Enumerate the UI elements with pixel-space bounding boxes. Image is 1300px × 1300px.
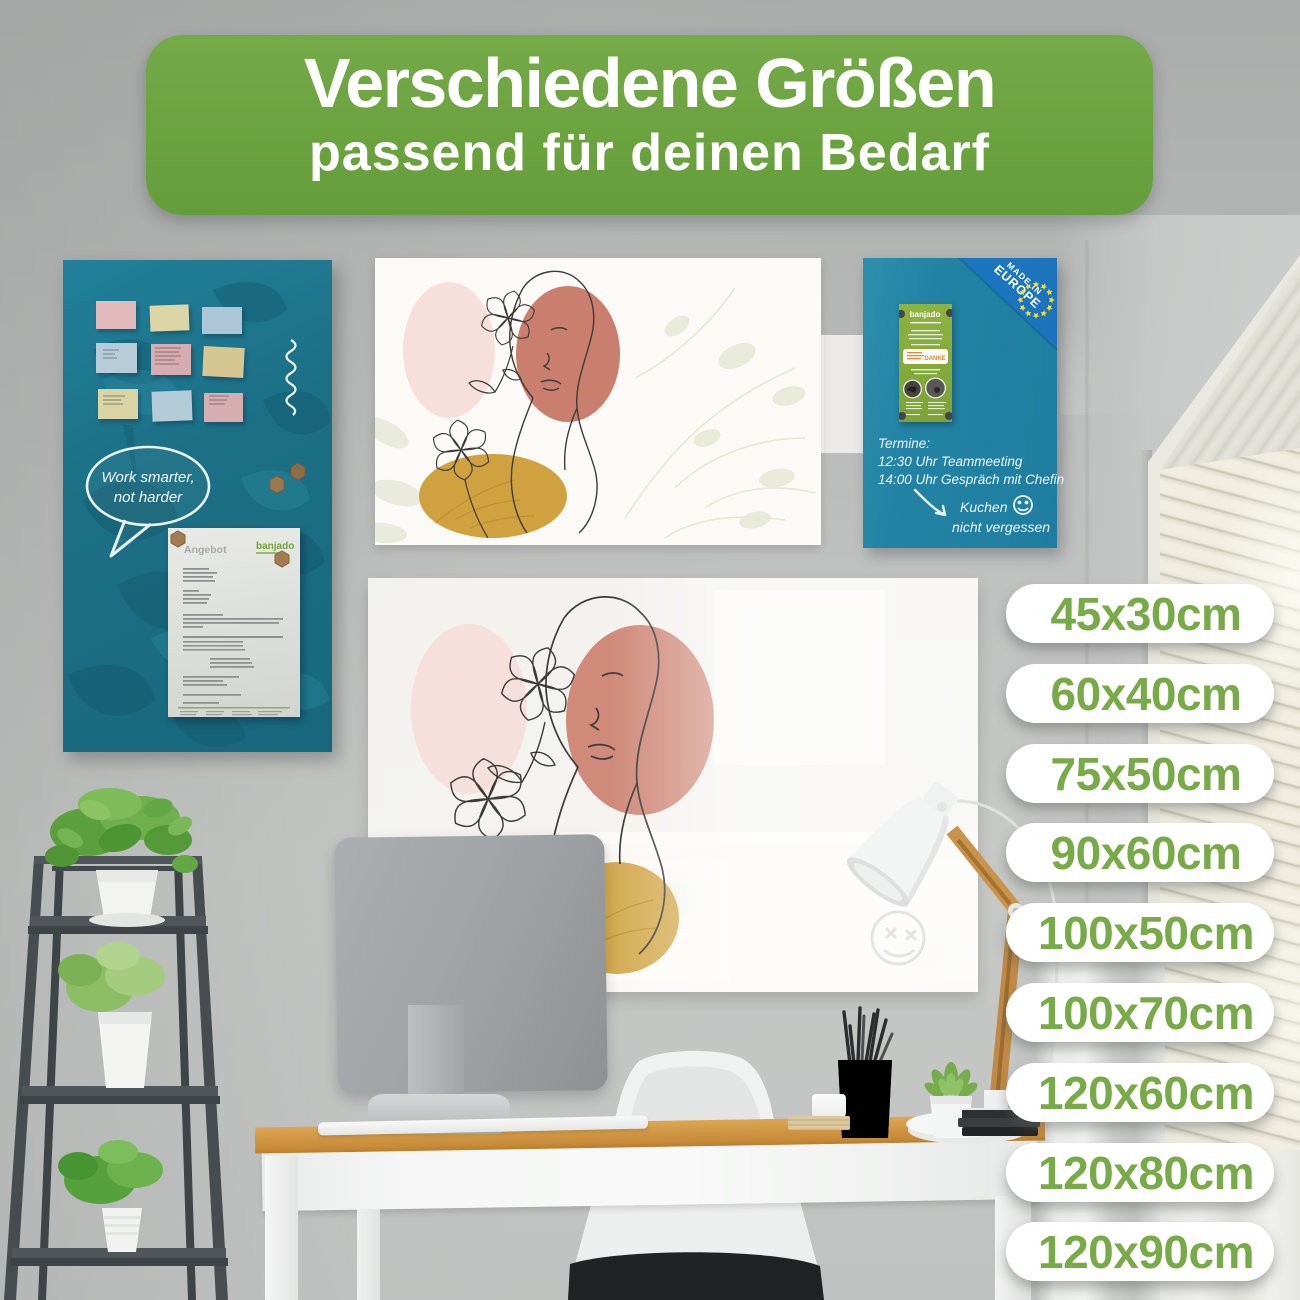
svg-text:banjado: banjado xyxy=(256,541,294,552)
svg-text:Kuchen: Kuchen xyxy=(960,499,1008,515)
svg-text:nicht vergessen: nicht vergessen xyxy=(952,519,1050,535)
svg-text:banjado: banjado xyxy=(910,310,941,319)
svg-text:not harder: not harder xyxy=(114,489,183,506)
svg-text:Angebot: Angebot xyxy=(184,544,227,556)
svg-text:Work smarter,: Work smarter, xyxy=(101,469,194,486)
svg-text:DANKE: DANKE xyxy=(924,356,945,362)
